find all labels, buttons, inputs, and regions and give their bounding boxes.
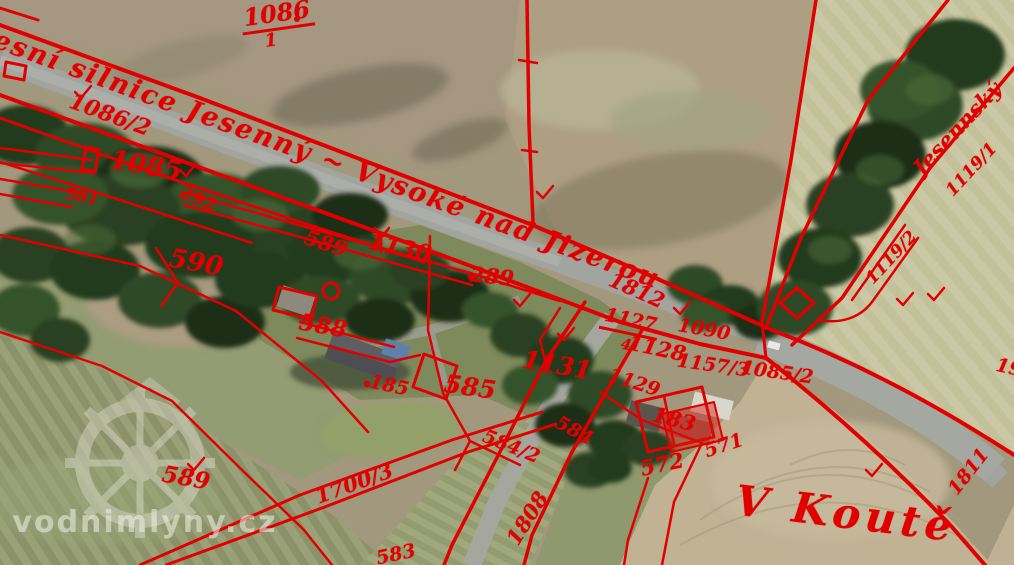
- circle-shape: [468, 274, 474, 280]
- ellipse-shape: [588, 453, 632, 483]
- line-shape: [87, 410, 96, 419]
- ellipse-shape: [334, 240, 386, 270]
- ellipse-shape: [30, 318, 90, 362]
- ellipse-shape: [906, 75, 954, 105]
- circle-shape: [294, 16, 300, 22]
- cadastral-map-viewport[interactable]: okresní silnice Jesenný ~ Vysoké nad Jiz…: [0, 0, 1014, 565]
- line-shape: [87, 507, 96, 516]
- circle-shape: [364, 381, 370, 387]
- ellipse-shape: [502, 365, 558, 405]
- line-shape: [184, 507, 193, 516]
- ellipse-shape: [345, 298, 415, 342]
- ellipse-shape: [710, 420, 950, 540]
- aerial-photo-canvas: [0, 0, 1014, 565]
- ellipse-shape: [110, 152, 170, 188]
- ellipse-shape: [610, 90, 770, 150]
- ellipse-shape: [856, 155, 904, 185]
- ellipse-shape: [808, 236, 852, 264]
